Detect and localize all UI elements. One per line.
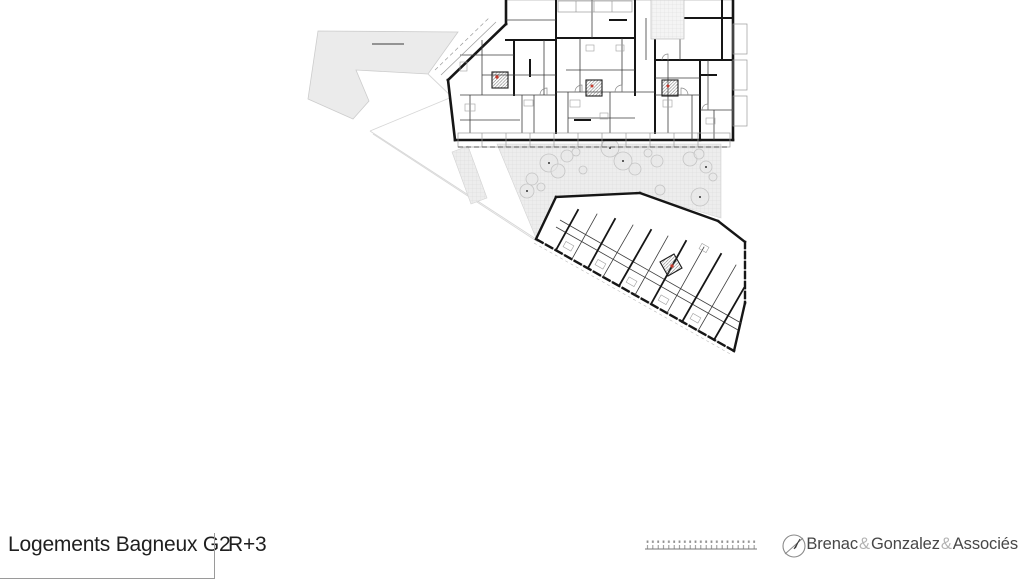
footer-divider (214, 533, 215, 579)
scale-bar (645, 540, 757, 550)
existing-building-label (372, 43, 404, 45)
firm-name-part: Gonzalez (871, 535, 940, 553)
upper-building (435, 0, 747, 147)
lower-building (534, 193, 745, 355)
firm-ampersand: & (858, 535, 871, 553)
firm-name-part: Associés (953, 535, 1018, 553)
floor-plan-canvas (0, 0, 1024, 580)
floor-level-label: R+3 (228, 533, 267, 557)
firm-name: Brenac&Gonzalez&Associés (806, 535, 1018, 554)
project-title: Logements Bagneux G2 (8, 533, 231, 557)
north-arrow-icon (783, 535, 805, 557)
footer-underline (0, 578, 215, 579)
firm-name-part: Brenac (806, 535, 858, 553)
firm-ampersand: & (940, 535, 953, 553)
